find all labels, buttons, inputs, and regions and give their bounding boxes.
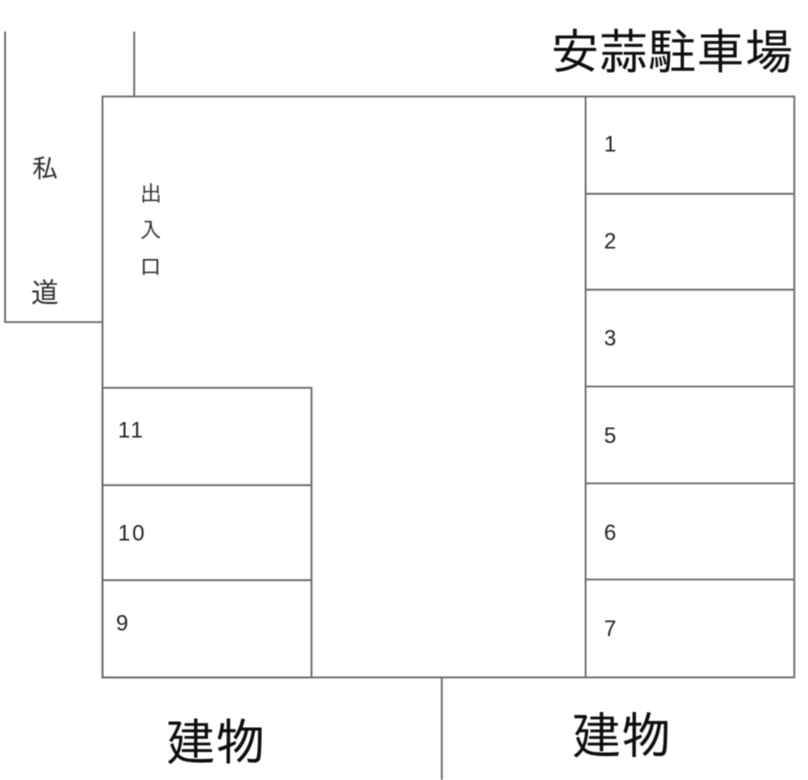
svg-text:2: 2 (604, 229, 616, 254)
svg-text:5: 5 (604, 423, 616, 448)
svg-text:3: 3 (604, 326, 616, 351)
svg-text:11: 11 (118, 417, 145, 442)
svg-text:9: 9 (116, 611, 128, 636)
svg-text:1: 1 (604, 131, 616, 156)
svg-text:7: 7 (604, 616, 616, 641)
svg-text:10: 10 (118, 521, 146, 546)
svg-text:6: 6 (604, 520, 616, 545)
